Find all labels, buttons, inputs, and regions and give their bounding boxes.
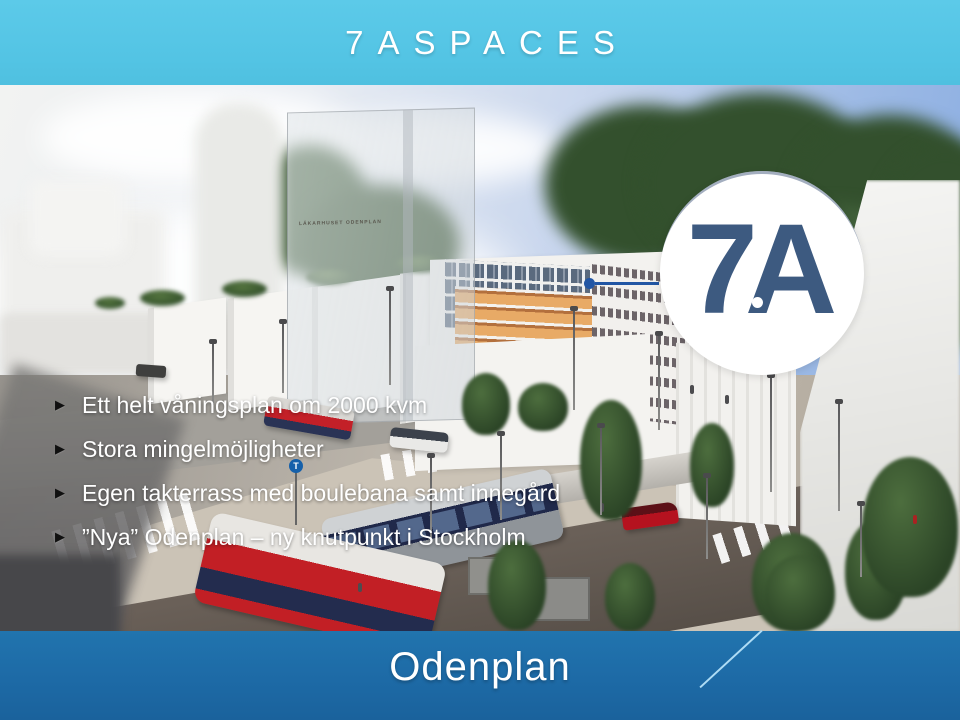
lamp-head — [570, 306, 578, 311]
pedestrian — [690, 385, 694, 394]
glass-tower-label: LÄKARHUSET ODENPLAN — [299, 219, 382, 227]
presentation-slide: 7ASPACES — [0, 0, 960, 720]
street-lamp — [706, 477, 708, 559]
bullet-item: ▶ Ett helt våningsplan om 2000 kvm — [55, 392, 560, 418]
slide-title: 7ASPACES — [331, 24, 629, 62]
logo-circle: 7A — [660, 171, 864, 375]
left-building-blob — [30, 180, 125, 255]
bullet-text: Ett helt våningsplan om 2000 kvm — [82, 392, 427, 418]
bush-blob — [95, 297, 125, 309]
lamp-head — [386, 286, 394, 291]
bullet-text: ”Nya” Odenplan – ny knutpunkt i Stockhol… — [82, 524, 526, 550]
street-lamp — [860, 505, 862, 577]
street-lamp — [600, 427, 602, 515]
bullet-item: ▶ ”Nya” Odenplan – ny knutpunkt i Stockh… — [55, 524, 560, 550]
tree-blob — [605, 563, 655, 631]
logo-dot — [752, 297, 763, 308]
lamp-head — [857, 501, 865, 506]
floor-marker-line — [595, 282, 659, 285]
lamp-head — [597, 423, 605, 428]
logo-7a-text: 7A — [687, 196, 838, 343]
bush-blob — [222, 281, 267, 297]
lamp-head — [655, 331, 663, 336]
dark-car — [136, 364, 167, 378]
bullet-text: Stora mingelmöjligheter — [82, 436, 324, 462]
bullet-triangle-icon: ▶ — [55, 480, 65, 506]
tree-blob — [862, 457, 958, 597]
street-lamp — [282, 323, 284, 393]
footer-title: Odenplan — [0, 645, 960, 690]
bullet-triangle-icon: ▶ — [55, 436, 65, 462]
header-band: 7ASPACES — [0, 0, 960, 85]
street-lamp — [658, 335, 660, 430]
glass-tower: LÄKARHUSET ODENPLAN — [287, 108, 475, 425]
tree-blob — [765, 555, 835, 631]
street-lamp — [389, 290, 391, 385]
pedestrian — [358, 583, 362, 592]
street-lamp — [573, 310, 575, 410]
tree-blob — [690, 423, 734, 507]
bullet-text: Egen takterrass med boulebana samt inneg… — [82, 480, 560, 506]
pedestrian — [725, 395, 729, 404]
bullet-triangle-icon: ▶ — [55, 524, 65, 550]
bush-blob — [140, 290, 185, 306]
lamp-head — [209, 339, 217, 344]
street-lamp — [770, 377, 772, 492]
bullet-item: ▶ Stora mingelmöjligheter — [55, 436, 560, 462]
street-lamp — [838, 403, 840, 511]
bullet-item: ▶ Egen takterrass med boulebana samt inn… — [55, 480, 560, 506]
footer-band: Odenplan — [0, 631, 960, 720]
floor-marker-dot — [584, 278, 595, 289]
glass-tower-column — [403, 110, 413, 420]
slab-building — [148, 298, 226, 405]
lamp-head — [279, 319, 287, 324]
pedestrian — [913, 515, 917, 524]
logo-dot — [745, 283, 756, 294]
tree-blob — [580, 400, 642, 520]
bullet-list: ▶ Ett helt våningsplan om 2000 kvm ▶ Sto… — [55, 392, 560, 568]
lamp-head — [703, 473, 711, 478]
lamp-head — [835, 399, 843, 404]
bullet-triangle-icon: ▶ — [55, 392, 65, 418]
